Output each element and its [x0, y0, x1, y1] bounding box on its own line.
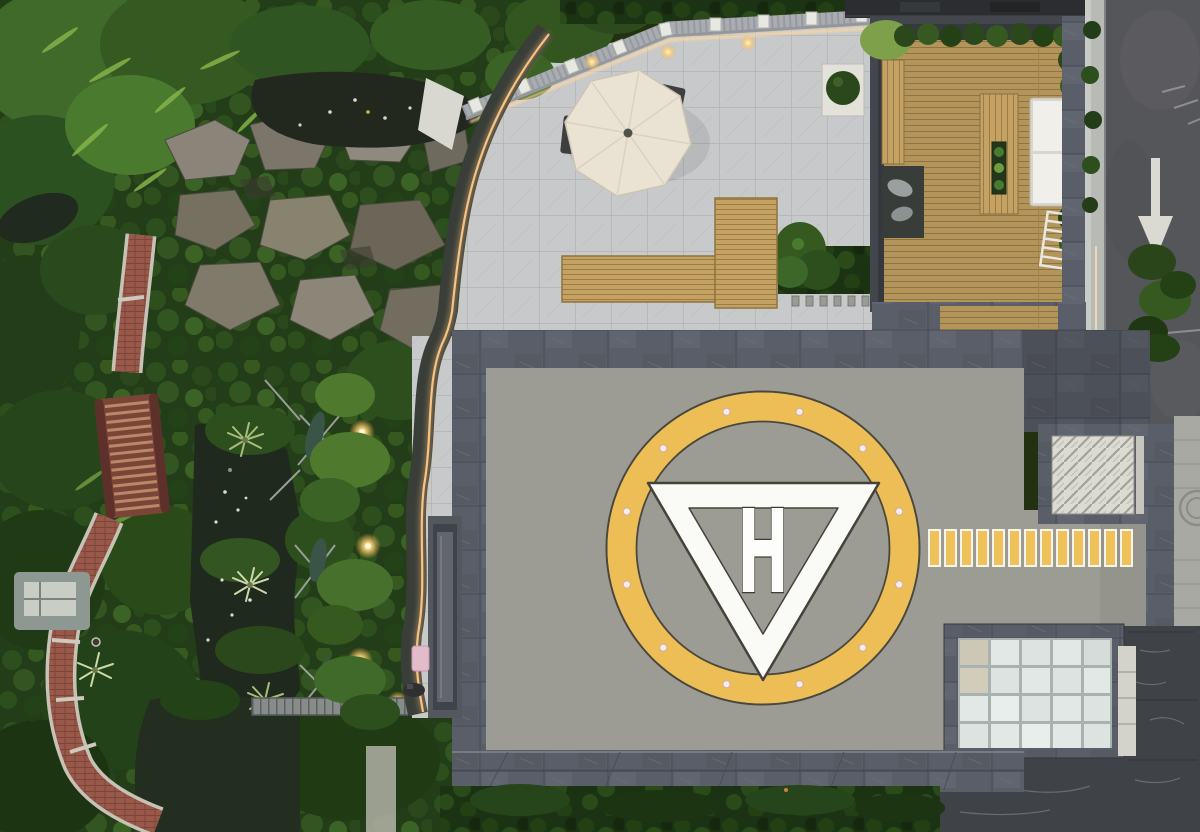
- lightwell-window: [428, 516, 462, 718]
- adjacent-roof-band: [845, 0, 1090, 18]
- hatch-rail: [1136, 436, 1144, 514]
- wood-bench-vertical: [715, 198, 777, 308]
- hatch-platform: [1052, 436, 1134, 514]
- raised-platform: [980, 94, 1018, 214]
- aerial-photo-canvas: H: [0, 0, 1200, 832]
- light-wall-strip: [1118, 646, 1136, 756]
- bottom-hedge: [440, 784, 945, 832]
- parked-scooter: [403, 683, 425, 697]
- helipad-letter-h: H: [737, 485, 789, 619]
- skylight: [944, 624, 1124, 758]
- stone-pavement-right: [1174, 416, 1200, 648]
- parapet-top: [452, 330, 1088, 372]
- umbrella-hub: [624, 129, 633, 138]
- gravel-strip: [366, 746, 396, 832]
- deck-gravel-patch: [882, 166, 924, 238]
- garden-seating: [14, 572, 90, 630]
- pink-chair: [412, 646, 429, 671]
- helipad-letter: H: [737, 485, 789, 619]
- wooden-footbridge: [94, 393, 170, 519]
- upper-wood-strip: [940, 306, 1058, 332]
- parapet-right-band: [1146, 424, 1176, 642]
- aerial-rooftop-photo: H: [0, 0, 1200, 832]
- planter-box-a: [822, 64, 864, 116]
- timber-deck: [860, 16, 1086, 316]
- deck-bench: [882, 60, 904, 164]
- low-wood-bench: [562, 256, 718, 302]
